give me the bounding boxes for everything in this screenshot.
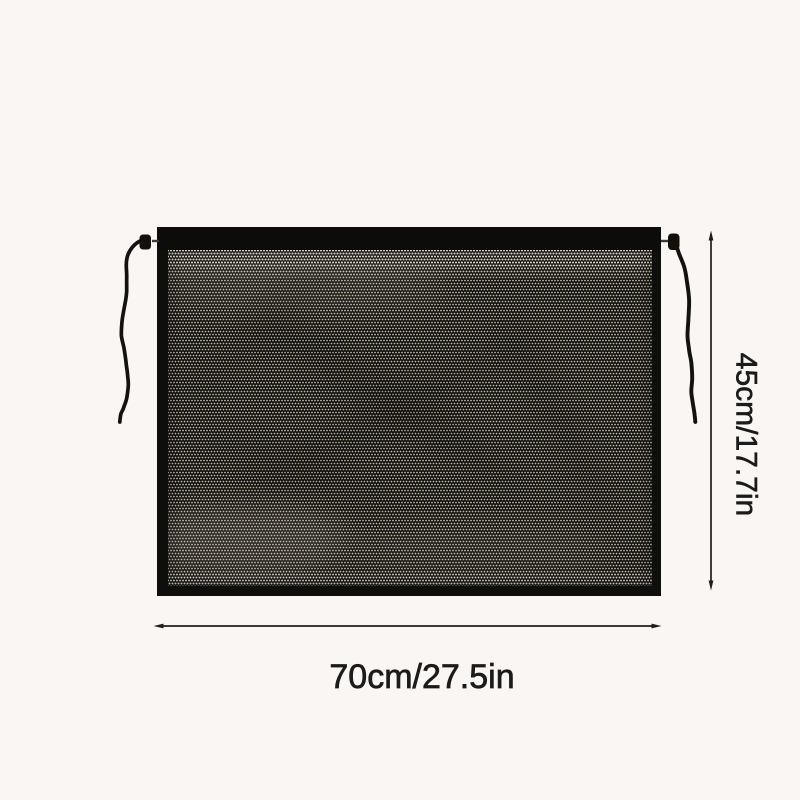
svg-text:45cm/17.7in: 45cm/17.7in — [730, 353, 763, 516]
svg-text:70cm/27.5in: 70cm/27.5in — [329, 658, 514, 696]
